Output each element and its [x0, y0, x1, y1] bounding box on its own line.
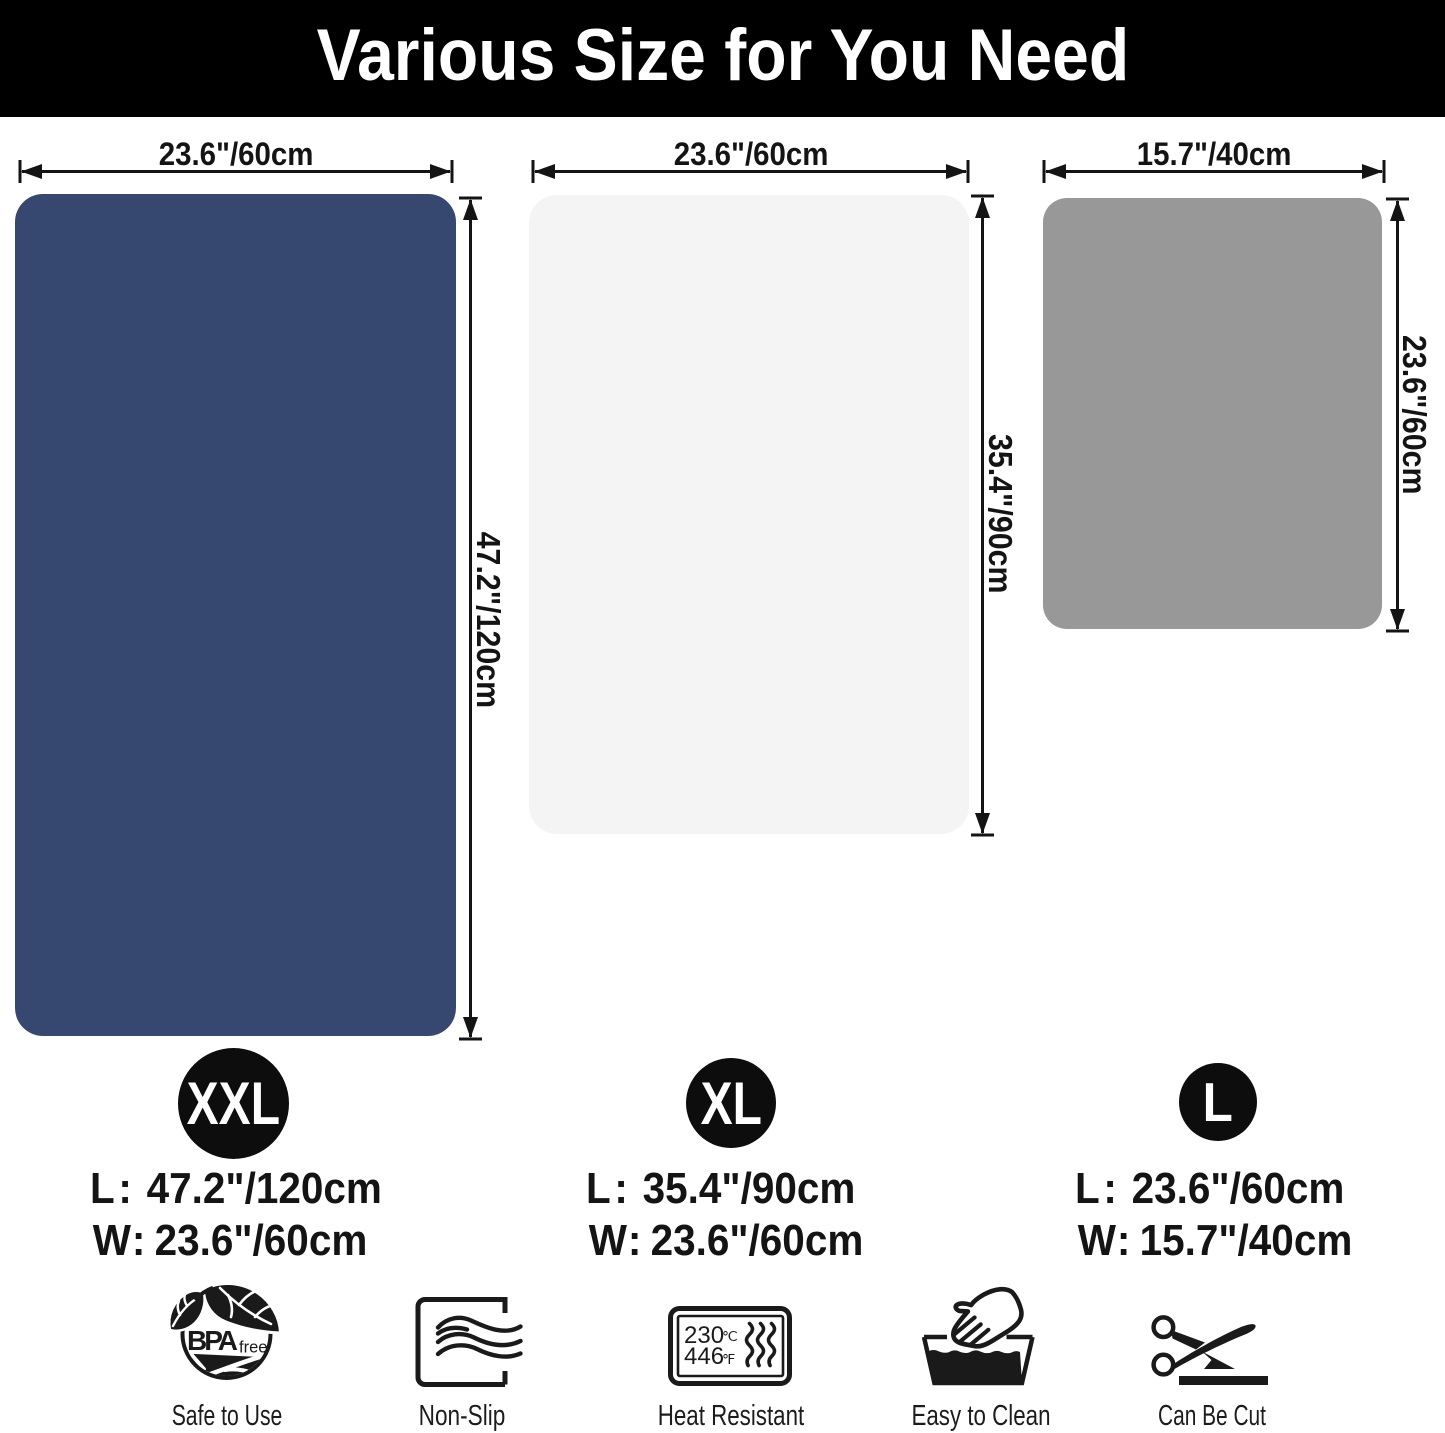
svg-text:℉: ℉	[722, 1351, 735, 1367]
svg-text:BPA: BPA	[187, 1325, 238, 1356]
svg-text:℃: ℃	[722, 1328, 738, 1344]
svg-text:446: 446	[684, 1343, 724, 1370]
